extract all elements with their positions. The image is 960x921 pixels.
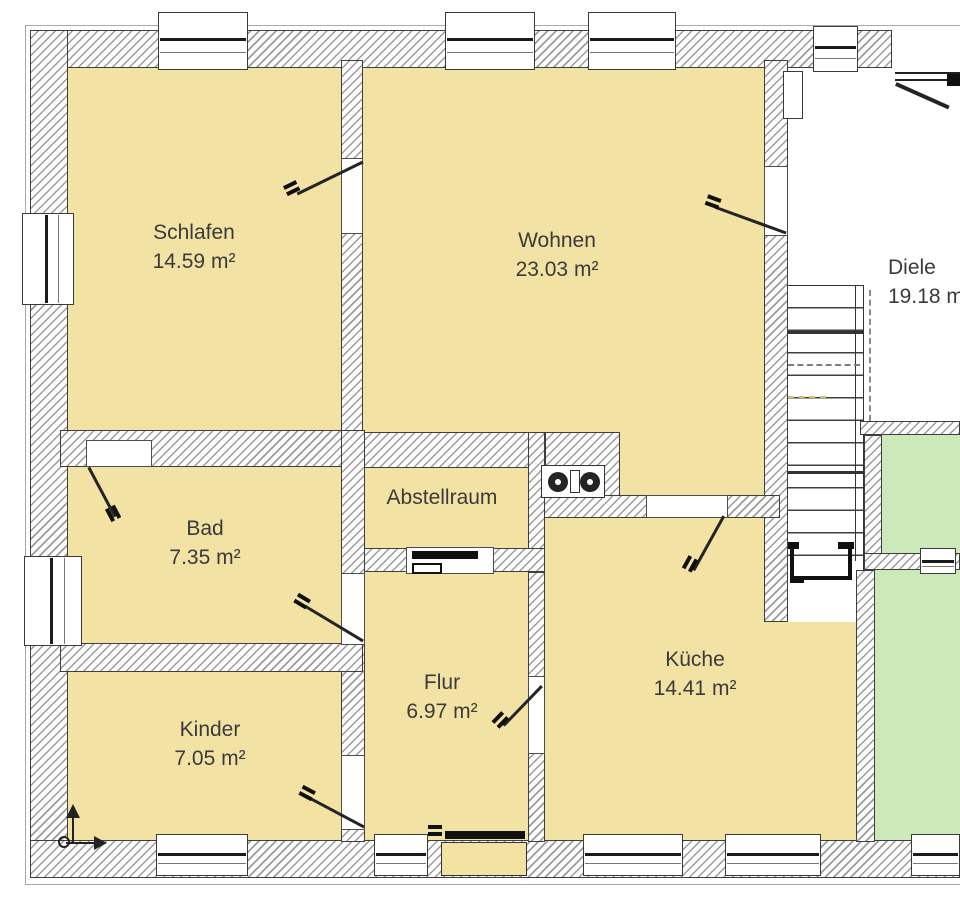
north-arrow-icon xyxy=(56,804,108,860)
stair-handrail xyxy=(790,546,852,580)
room-label-schlafen: Schlafen 14.59 m² xyxy=(124,218,264,276)
window-schlafen-left xyxy=(22,213,74,305)
room-name: Diele xyxy=(888,253,960,282)
floor-plan: Schlafen 14.59 m² Wohnen 23.03 m² Diele … xyxy=(0,0,960,921)
entrance-vestibule xyxy=(441,842,527,876)
outdoor-area-lower xyxy=(868,563,960,843)
stair-cut-line xyxy=(788,364,860,366)
wall-bad-kinder xyxy=(60,643,363,672)
window-kueche-bottom-2 xyxy=(725,834,821,876)
room-name: Bad xyxy=(140,514,270,543)
room-name: Flur xyxy=(372,668,512,697)
entrance-door-leaf xyxy=(445,831,525,839)
room-name: Schlafen xyxy=(124,218,264,247)
sliding-door-leaf xyxy=(412,551,478,559)
room-label-diele: Diele 19.18 m² xyxy=(888,253,960,311)
stove-icon xyxy=(541,465,605,498)
room-area: 6.97 m² xyxy=(372,697,512,726)
window-flur-bottom xyxy=(374,834,428,876)
window-wohnen-top-2 xyxy=(588,12,676,70)
room-area: 14.41 m² xyxy=(620,674,770,703)
window-outdoor-mid xyxy=(920,548,956,574)
room-area: 7.05 m² xyxy=(140,744,280,773)
room-area: 7.35 m² xyxy=(140,543,270,572)
window-outdoor-bottom xyxy=(911,834,960,876)
entrance-door-handle xyxy=(428,824,444,836)
outdoor-area-upper xyxy=(875,430,960,558)
window-wohnen-top-1 xyxy=(445,12,535,70)
wall-schlafen-wohnen xyxy=(341,60,363,440)
room-name: Wohnen xyxy=(487,226,627,255)
room-label-kinder: Kinder 7.05 m² xyxy=(140,715,280,773)
door-opening-flur-kueche xyxy=(528,676,545,754)
stair-treads xyxy=(787,286,863,561)
wall-wohnen-diele xyxy=(764,60,788,622)
diele-entrance-opening xyxy=(893,30,960,70)
window-kueche-bottom-1 xyxy=(583,834,683,876)
room-label-kueche: Küche 14.41 m² xyxy=(620,645,770,703)
room-name: Kinder xyxy=(140,715,280,744)
room-area: 23.03 m² xyxy=(487,255,627,284)
door-opening-bad xyxy=(86,440,152,467)
wall-kueche-right xyxy=(856,570,875,842)
room-name: Küche xyxy=(620,645,770,674)
window-kinder-bottom xyxy=(156,834,248,876)
window-schlafen-top xyxy=(158,12,248,70)
door-opening-kueche xyxy=(646,495,728,518)
radiator-icon xyxy=(783,71,803,119)
stair-mark-line xyxy=(788,396,826,398)
wall-outdoor-top xyxy=(860,421,960,435)
room-label-abstellraum: Abstellraum xyxy=(372,483,512,512)
room-label-wohnen: Wohnen 23.03 m² xyxy=(487,226,627,284)
room-name: Abstellraum xyxy=(372,483,512,512)
window-bad-left xyxy=(24,556,82,646)
wall-abstellraum-top xyxy=(355,432,555,468)
room-wohnen-ext xyxy=(615,440,770,500)
window-diele-top xyxy=(813,26,858,72)
room-area: 14.59 m² xyxy=(124,247,264,276)
room-label-flur: Flur 6.97 m² xyxy=(372,668,512,726)
wall-outdoor-left xyxy=(864,435,882,555)
room-area: 19.18 m² xyxy=(888,282,960,311)
room-label-bad: Bad 7.35 m² xyxy=(140,514,270,572)
sliding-door-pocket xyxy=(412,563,442,574)
roof-dash-line xyxy=(869,290,871,421)
